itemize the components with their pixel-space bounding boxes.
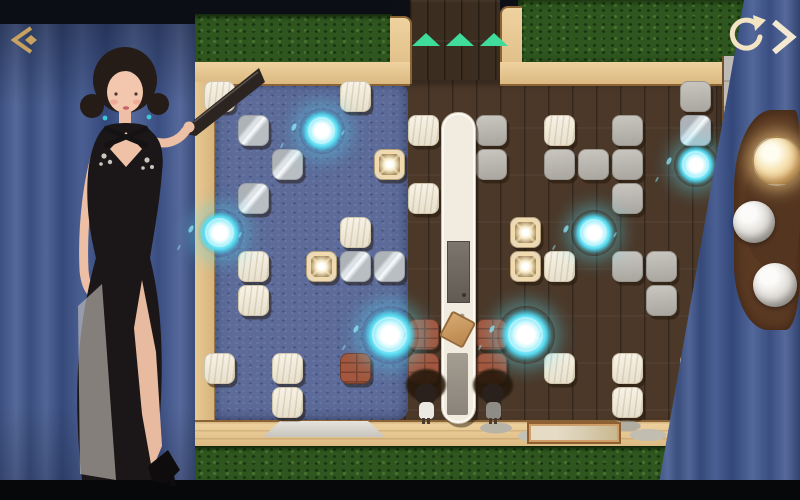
puzzle-tile-wood-white[interactable] [272, 353, 303, 384]
puzzle-tile-stone-gray[interactable] [612, 251, 643, 282]
ball-silver[interactable] [753, 263, 797, 307]
energy-orb [571, 210, 617, 256]
hostess-character [44, 22, 274, 496]
energy-orb [674, 143, 718, 187]
puzzle-tile-wood-white[interactable] [408, 183, 439, 214]
restart-circular-arrow-icon[interactable] [724, 14, 766, 58]
puzzle-tile-stone-gray[interactable] [578, 149, 609, 180]
folding-fan-icon [186, 68, 265, 136]
puzzle-tile-jewel[interactable] [510, 217, 541, 248]
doormat [263, 421, 385, 437]
puzzle-tile-stone-gray[interactable] [612, 183, 643, 214]
goal-arrow-icon [480, 33, 508, 46]
goal-arrow-icon [446, 33, 474, 46]
puzzle-tile-wood-white[interactable] [544, 115, 575, 146]
puzzle-tile-mirror[interactable] [272, 149, 303, 180]
crate [527, 422, 621, 444]
puzzle-tile-stone-gray[interactable] [646, 285, 677, 316]
goal-arrow-icon [412, 33, 440, 46]
puzzle-tile-stone-gray[interactable] [476, 149, 507, 180]
energy-orb [299, 108, 345, 154]
puzzle-tile-mirror[interactable] [374, 251, 405, 282]
puzzle-tile-stone-gray[interactable] [476, 115, 507, 146]
puzzle-tile-jewel[interactable] [374, 149, 405, 180]
person-leg [427, 418, 430, 424]
puzzle-tile-stone-gray[interactable] [612, 115, 643, 146]
puzzle-tile-wood-white[interactable] [272, 387, 303, 418]
puzzle-tile-wood-white[interactable] [408, 115, 439, 146]
stove-panel [447, 241, 470, 303]
person-body [486, 402, 501, 419]
ball-gold-highlighted[interactable] [752, 136, 800, 186]
puzzle-tile-jewel[interactable] [306, 251, 337, 282]
earring [103, 116, 108, 121]
puzzle-tile-mirror[interactable] [340, 251, 371, 282]
back-chevron-icon[interactable] [6, 24, 42, 56]
puzzle-tile-stone-gray[interactable] [646, 251, 677, 282]
person-leg [494, 418, 497, 424]
earring [147, 115, 152, 120]
person-leg [422, 418, 425, 424]
person-leg [489, 418, 492, 424]
game-screen: { "app": {"description": "top-down tile … [0, 0, 800, 500]
puzzle-tile-wood-white[interactable] [544, 353, 575, 384]
stage-top-black-bar [0, 0, 200, 24]
puzzle-tile-wood-white[interactable] [340, 81, 371, 112]
person-body [419, 402, 434, 419]
hedge-top-right [518, 0, 746, 64]
puzzle-tile-jewel[interactable] [510, 251, 541, 282]
puzzle-tile-wood-white[interactable] [612, 353, 643, 384]
energy-orb [497, 306, 555, 364]
counter-lower-panel [447, 353, 468, 415]
puzzle-tile-mirror[interactable] [680, 115, 711, 146]
puzzle-tile-wood-white[interactable] [340, 217, 371, 248]
puzzle-tile-stone-gray[interactable] [544, 149, 575, 180]
puzzle-tile-wood-white[interactable] [612, 387, 643, 418]
next-chevron-icon[interactable] [768, 18, 798, 56]
puzzle-tile-brick[interactable] [340, 353, 371, 384]
puzzle-tile-stone-gray[interactable] [680, 81, 711, 112]
backdrop-gap [195, 0, 392, 14]
ball-silver[interactable] [733, 201, 775, 243]
wall-frame [500, 62, 748, 86]
kitchen-counter [441, 112, 476, 424]
energy-orb [361, 306, 419, 364]
puzzle-tile-stone-gray[interactable] [612, 149, 643, 180]
puzzle-tile-wood-white[interactable] [544, 251, 575, 282]
